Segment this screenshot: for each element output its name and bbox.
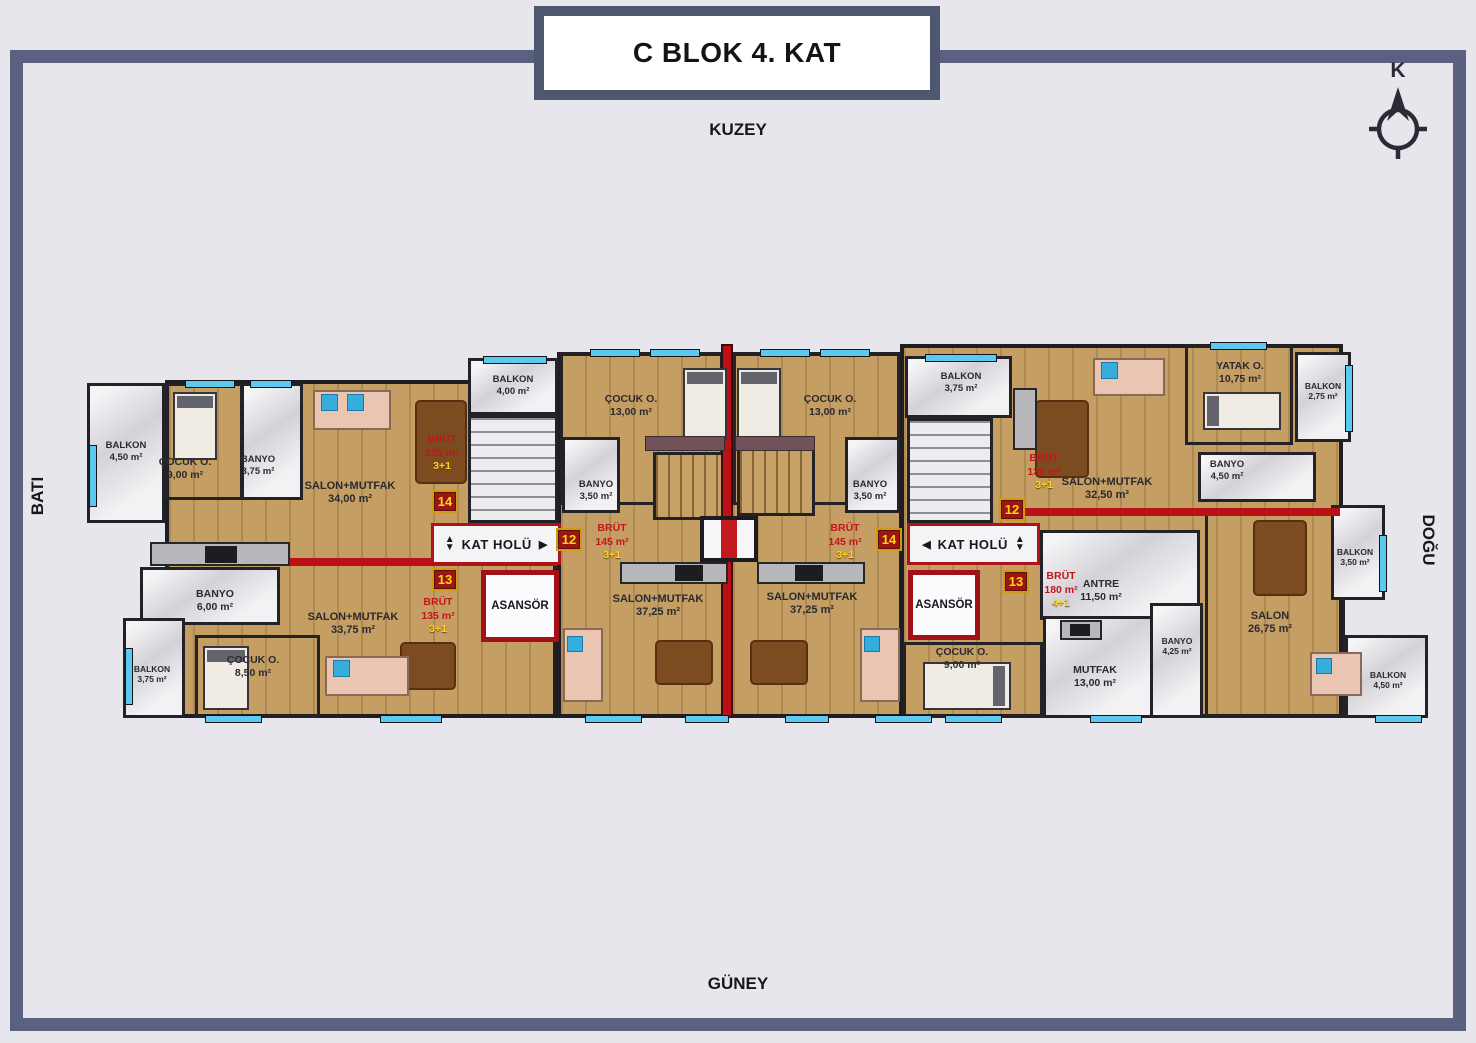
floor-hall: ▲ ▼ KAT HOLÜ ▶ (431, 523, 561, 565)
duplex-stairs (737, 448, 815, 516)
window (925, 354, 997, 362)
window (875, 715, 932, 723)
room-label: BANYO3,50 m² (838, 479, 902, 502)
dining-table (655, 640, 713, 685)
room-bathroom (1150, 603, 1203, 718)
floor-plan: ▲ ▼ KAT HOLÜ ▶ ASANSÖR ◀ KAT HOLÜ ▲ ▼ (85, 330, 1435, 730)
hall-label: KAT HOLÜ (938, 537, 1008, 552)
unit-number-badge: 12 (999, 498, 1025, 521)
dining-table (1253, 520, 1307, 596)
sofa-pillow (1101, 362, 1118, 379)
sofa-pillow (864, 636, 880, 652)
elevator: ASANSÖR (908, 570, 980, 640)
window (205, 715, 262, 723)
room-label: BALKON2,75 m² (1295, 381, 1351, 402)
room-label: ÇOCUK O.9,00 m² (922, 646, 1002, 672)
room-label: BANYO3,50 m² (564, 479, 628, 502)
sofa-pillow (347, 394, 364, 411)
sofa-pillow (1316, 658, 1332, 674)
room-label: ÇOCUK O.13,00 m² (583, 393, 679, 419)
room-label: ÇOCUK O.8,50 m² (213, 654, 293, 680)
window (380, 715, 442, 723)
elevator-label: ASANSÖR (491, 600, 549, 612)
window (483, 356, 547, 364)
room-label: BANYO6,00 m² (180, 588, 250, 614)
window (685, 715, 729, 723)
compass-north-letter: K (1352, 60, 1444, 81)
sofa-pillow (321, 394, 338, 411)
stove (1070, 624, 1090, 636)
window (250, 380, 292, 388)
unit-brut-label: BRÜT 135 m² 3+1 (407, 596, 469, 637)
unit-brut-label: BRÜT 145 m² 3+1 (583, 522, 641, 563)
hall-label: KAT HOLÜ (462, 537, 532, 552)
room-label: ÇOCUK O.13,00 m² (782, 393, 878, 419)
stairwell (907, 418, 993, 523)
kitchen-counter (1013, 388, 1037, 450)
unit-number-badge: 13 (432, 568, 458, 591)
bed-pillow (741, 372, 777, 384)
compass: K (1352, 60, 1444, 161)
window (945, 715, 1002, 723)
window (585, 715, 642, 723)
unit-number-badge: 13 (1003, 570, 1029, 593)
title-text: C BLOK 4. KAT (633, 37, 841, 69)
unit-number-badge: 12 (556, 528, 582, 551)
room-label: SALON+MUTFAK33,75 m² (288, 611, 418, 638)
room-label: BANYO4,25 m² (1147, 636, 1207, 657)
arrow-right-icon: ▶ (539, 538, 547, 551)
room-label: SALON+MUTFAK37,25 m² (747, 591, 877, 618)
window (590, 349, 640, 357)
wardrobe (645, 436, 725, 451)
room-label: BALKON4,50 m² (1353, 670, 1423, 691)
direction-west: BATI (28, 466, 48, 526)
unit-number-badge: 14 (432, 490, 458, 513)
window (1090, 715, 1142, 723)
bed-pillow (1207, 396, 1219, 426)
sofa-pillow (333, 660, 350, 677)
bed-pillow (177, 396, 213, 408)
bed-pillow (993, 666, 1005, 706)
window (785, 715, 829, 723)
unit-brut-label: BRÜT 145 m² 3+1 (816, 522, 874, 563)
unit-number-badge: 14 (876, 528, 902, 551)
direction-north: KUZEY (0, 120, 1476, 140)
arrow-down-icon: ▼ (445, 544, 455, 553)
room-label: BALKON3,75 m² (122, 664, 182, 685)
direction-south: GÜNEY (0, 974, 1476, 994)
unit-divider-wall (1010, 508, 1340, 516)
arrow-left-icon: ◀ (922, 538, 930, 551)
stove (205, 546, 237, 563)
floor-hall: ◀ KAT HOLÜ ▲ ▼ (907, 523, 1040, 565)
room-label: BANYO3,75 m² (223, 454, 293, 477)
room-label: BALKON3,75 m² (925, 371, 997, 394)
room-label: BALKON3,50 m² (1327, 547, 1383, 568)
elevator: ASANSÖR (481, 570, 559, 642)
unit-brut-label: BRÜT 180 m² 4+1 (1031, 570, 1091, 611)
elevator-label: ASANSÖR (915, 599, 973, 611)
kitchen-counter (620, 562, 728, 584)
window (760, 349, 810, 357)
window (185, 380, 235, 388)
hall-arrows: ▲ ▼ (445, 536, 455, 553)
window (1210, 342, 1267, 350)
wardrobe (735, 436, 815, 451)
window (650, 349, 700, 357)
arrow-down-icon: ▼ (1015, 544, 1025, 553)
room-label: SALON+MUTFAK34,00 m² (285, 480, 415, 507)
unit-brut-label: BRÜT 130 m² 3+1 (1013, 452, 1075, 493)
unit-brut-label: BRÜT 135 m² 3+1 (411, 433, 473, 474)
stove (675, 565, 703, 581)
stove (795, 565, 823, 581)
room-label: ÇOCUK O.9,00 m² (145, 456, 225, 482)
page-title: C BLOK 4. KAT (534, 6, 940, 100)
stairwell (468, 415, 558, 523)
sofa-pillow (567, 636, 583, 652)
duplex-stairs (653, 452, 729, 520)
room-label: SALON+MUTFAK37,25 m² (593, 593, 723, 620)
room-label: BANYO4,50 m² (1192, 459, 1262, 482)
dining-table (750, 640, 808, 685)
hall-arrows: ▲ ▼ (1015, 536, 1025, 553)
room-label: BALKON4,00 m² (477, 374, 549, 397)
shaft (700, 516, 758, 562)
bed-pillow (687, 372, 723, 384)
room-label: MUTFAK13,00 m² (1055, 664, 1135, 690)
floorplan-page: C BLOK 4. KAT KUZEY GÜNEY BATI DOĞU K (0, 0, 1476, 1043)
window (1375, 715, 1422, 723)
compass-icon (1367, 83, 1429, 161)
window (820, 349, 870, 357)
room-label: SALON26,75 m² (1225, 610, 1315, 637)
room-label: YATAK O.10,75 m² (1195, 360, 1285, 386)
